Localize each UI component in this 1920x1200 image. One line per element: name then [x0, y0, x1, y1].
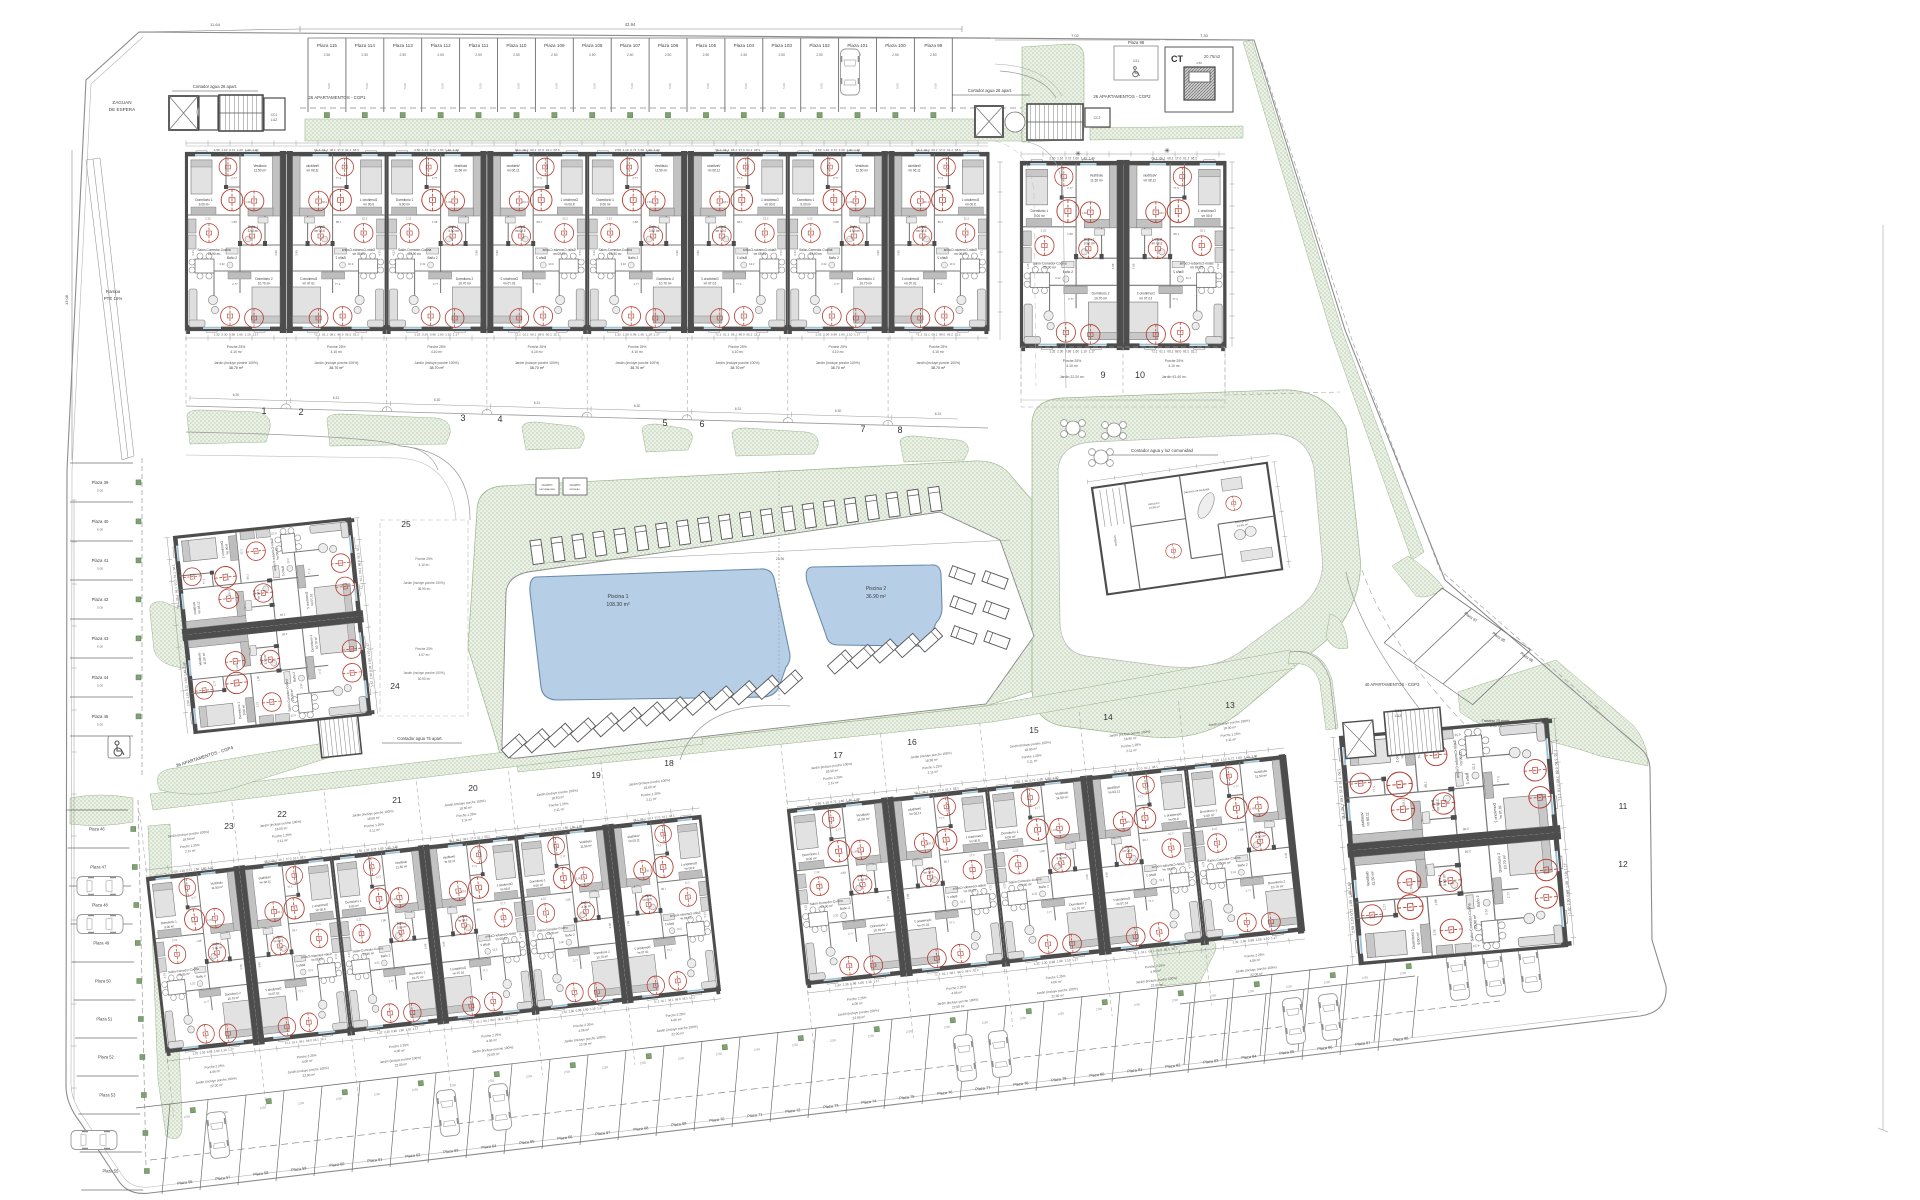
svg-text:8: 8: [897, 425, 902, 435]
svg-text:2.50: 2.50: [1020, 1016, 1027, 1021]
svg-text:Plaza 104: Plaza 104: [734, 43, 755, 48]
svg-text:DE ESPERA: DE ESPERA: [109, 107, 136, 112]
svg-text:Plaza 39: Plaza 39: [92, 480, 109, 485]
svg-text:LUZ: LUZ: [1395, 714, 1403, 718]
svg-text:2.50: 2.50: [324, 53, 331, 57]
svg-text:Plaza 42: Plaza 42: [92, 597, 109, 602]
svg-text:Porche 25%: Porche 25%: [327, 345, 345, 349]
svg-text:2: 2: [298, 407, 303, 417]
svg-text:2.50: 2.50: [513, 53, 520, 57]
svg-text:5.00: 5.00: [516, 83, 520, 89]
svg-text:5.00: 5.00: [97, 645, 103, 649]
svg-text:LUZ: LUZ: [271, 118, 277, 122]
svg-text:20,75m2: 20,75m2: [1204, 54, 1221, 59]
svg-text:Plaza 110: Plaza 110: [506, 43, 527, 48]
svg-text:16: 16: [907, 737, 917, 747]
svg-text:Porche 25%: Porche 25%: [929, 345, 947, 349]
svg-text:CC1: CC1: [271, 113, 278, 117]
svg-text:Plaza 112: Plaza 112: [431, 43, 452, 48]
svg-text:2.50: 2.50: [816, 53, 823, 57]
svg-text:5.00: 5.00: [933, 83, 937, 89]
svg-text:Plaza 48: Plaza 48: [92, 903, 109, 908]
svg-text:5.00: 5.00: [97, 723, 103, 727]
svg-text:4.10 m²: 4.10 m²: [1066, 364, 1078, 368]
svg-text:38.70 m²: 38.70 m²: [831, 366, 846, 370]
svg-text:4.10 m²: 4.10 m²: [932, 350, 944, 354]
svg-text:5.00: 5.00: [744, 83, 748, 89]
svg-text:Jardín (incluye porche 100%): Jardín (incluye porche 100%): [515, 361, 559, 365]
svg-text:1: 1: [261, 406, 266, 416]
svg-text:2.50: 2.50: [665, 53, 672, 57]
svg-text:5.00: 5.00: [403, 83, 407, 89]
svg-text:2.50: 2.50: [792, 1043, 799, 1048]
svg-text:5.00: 5.00: [327, 83, 331, 89]
svg-text:21: 21: [392, 795, 402, 805]
svg-text:Plaza 53: Plaza 53: [99, 1093, 116, 1098]
svg-text:2.50: 2.50: [450, 1083, 457, 1088]
svg-text:Jardín 22.20 m²: Jardín 22.20 m²: [1060, 375, 1085, 379]
svg-text:Plaza 103: Plaza 103: [772, 43, 793, 48]
svg-text:6.31: 6.31: [935, 412, 942, 416]
svg-text:2.50: 2.50: [716, 1052, 723, 1057]
svg-text:Plaza 106: Plaza 106: [658, 43, 679, 48]
svg-text:6.30: 6.30: [634, 404, 641, 408]
svg-text:30.90 m²: 30.90 m²: [418, 677, 431, 681]
svg-text:Plaza 46: Plaza 46: [89, 827, 106, 832]
svg-text:2.50: 2.50: [1134, 1002, 1141, 1007]
svg-text:2.50: 2.50: [1400, 971, 1407, 976]
svg-text:38.70 m²: 38.70 m²: [630, 366, 645, 370]
svg-text:Cortador agua 26 apart.: Cortador agua 26 apart.: [193, 84, 237, 89]
svg-text:Jardín 92.40 m²: Jardín 92.40 m²: [1162, 375, 1187, 379]
svg-text:36.90 m²: 36.90 m²: [866, 594, 886, 600]
svg-text:2.50: 2.50: [589, 53, 596, 57]
svg-text:38.70 m²: 38.70 m²: [530, 366, 545, 370]
svg-text:4.10 m²: 4.10 m²: [431, 350, 443, 354]
svg-text:Porche 25%: Porche 25%: [628, 345, 646, 349]
svg-text:2.50: 2.50: [362, 53, 369, 57]
svg-text:5.00: 5.00: [782, 83, 786, 89]
svg-text:2.50: 2.50: [374, 1092, 381, 1097]
svg-text:Plaza 44: Plaza 44: [92, 675, 109, 680]
svg-text:15: 15: [1029, 725, 1039, 735]
svg-text:5.00: 5.00: [668, 83, 672, 89]
svg-text:13.08: 13.08: [64, 294, 69, 305]
svg-text:Plaza 50: Plaza 50: [95, 979, 112, 984]
svg-text:Jardín (incluye porche 100%): Jardín (incluye porche 100%): [403, 671, 444, 675]
svg-text:Plaza 115: Plaza 115: [317, 43, 338, 48]
svg-text:Plaza 105: Plaza 105: [696, 43, 717, 48]
svg-text:23: 23: [224, 821, 234, 831]
svg-text:Plaza 52: Plaza 52: [98, 1055, 115, 1060]
svg-text:5.00: 5.00: [706, 83, 710, 89]
svg-text:11.64: 11.64: [210, 22, 220, 27]
svg-text:Porche 25%: Porche 25%: [227, 345, 245, 349]
svg-text:Plaza 100: Plaza 100: [885, 43, 906, 48]
svg-text:23.96: 23.96: [776, 557, 785, 561]
svg-text:40 APARTAMENTOS - CGP3: 40 APARTAMENTOS - CGP3: [1365, 682, 1420, 687]
svg-text:38.70 m²: 38.70 m²: [229, 366, 244, 370]
svg-text:PTE 16%: PTE 16%: [104, 296, 123, 301]
svg-text:2.50: 2.50: [1172, 998, 1179, 1003]
svg-text:6.30: 6.30: [434, 398, 441, 402]
svg-text:2.50: 2.50: [488, 1079, 495, 1084]
svg-text:Plaza 114: Plaza 114: [355, 43, 376, 48]
svg-text:2.50: 2.50: [778, 53, 785, 57]
svg-text:6.31: 6.31: [333, 396, 340, 400]
svg-text:6.30: 6.30: [835, 409, 842, 413]
svg-text:Plaza 113: Plaza 113: [393, 43, 414, 48]
svg-text:2.50: 2.50: [678, 1056, 685, 1061]
svg-text:2.50: 2.50: [551, 53, 558, 57]
svg-text:25: 25: [401, 519, 411, 529]
svg-text:Porche 25%: Porche 25%: [1165, 359, 1183, 363]
svg-text:5.00: 5.00: [97, 489, 103, 493]
svg-text:Plaza 108: Plaza 108: [582, 43, 603, 48]
svg-text:2.50: 2.50: [564, 1070, 571, 1075]
svg-text:42.94: 42.94: [625, 22, 636, 27]
svg-text:3.00 m²: 3.00 m²: [1490, 724, 1503, 728]
svg-text:Plaza 55: Plaza 55: [102, 1169, 119, 1174]
svg-text:Jardín (incluye porche 100%): Jardín (incluye porche 100%): [415, 361, 459, 365]
svg-text:6.31: 6.31: [534, 401, 541, 405]
svg-text:Plaza 98: Plaza 98: [1128, 40, 1145, 45]
svg-text:2.50: 2.50: [1324, 980, 1331, 985]
svg-text:36.90 m²: 36.90 m²: [418, 587, 431, 591]
svg-text:5.00: 5.00: [365, 83, 369, 89]
svg-text:20: 20: [468, 783, 478, 793]
svg-text:Plaza 51: Plaza 51: [96, 1017, 113, 1022]
svg-text:2.50: 2.50: [399, 53, 406, 57]
svg-text:9: 9: [1100, 370, 1105, 380]
svg-text:5.00: 5.00: [97, 606, 103, 610]
svg-text:2.50: 2.50: [1286, 984, 1293, 989]
svg-text:22: 22: [277, 809, 287, 819]
svg-text:Plaza 45: Plaza 45: [92, 714, 109, 719]
svg-text:38.70 m²: 38.70 m²: [730, 366, 745, 370]
svg-text:4.10 m²: 4.10 m²: [631, 350, 643, 354]
svg-text:26 APARTAMENTOS - CGP1: 26 APARTAMENTOS - CGP1: [308, 95, 366, 100]
svg-text:Plaza 99: Plaza 99: [924, 43, 942, 48]
svg-text:Porche 25%: Porche 25%: [728, 345, 746, 349]
svg-text:5.00: 5.00: [895, 83, 899, 89]
svg-text:2.50: 2.50: [1362, 975, 1369, 980]
svg-text:38.70 m²: 38.70 m²: [430, 366, 445, 370]
svg-text:2.50: 2.50: [336, 1096, 343, 1101]
svg-text:2.50: 2.50: [982, 1020, 989, 1025]
svg-text:4: 4: [497, 414, 502, 424]
svg-text:2.50: 2.50: [437, 53, 444, 57]
svg-text:108.30 m²: 108.30 m²: [606, 602, 630, 608]
svg-text:7.02: 7.02: [1071, 33, 1080, 38]
svg-text:4.07 m²: 4.07 m²: [419, 653, 430, 657]
svg-text:5.00: 5.00: [554, 83, 558, 89]
svg-text:2.50: 2.50: [906, 1029, 913, 1034]
svg-text:18: 18: [664, 758, 674, 768]
svg-text:5.00: 5.00: [441, 83, 445, 89]
svg-text:2.50: 2.50: [944, 1025, 951, 1030]
svg-text:2.50: 2.50: [1058, 1011, 1065, 1016]
svg-text:2.50: 2.50: [526, 1074, 533, 1079]
svg-text:5.00: 5.00: [97, 684, 103, 688]
svg-text:2.50: 2.50: [260, 1105, 267, 1110]
svg-text:5.00: 5.00: [592, 83, 596, 89]
svg-text:2.50: 2.50: [412, 1087, 419, 1092]
svg-text:4.10 m²: 4.10 m²: [1168, 364, 1180, 368]
svg-text:5: 5: [662, 418, 667, 428]
svg-text:13: 13: [1225, 700, 1235, 710]
svg-text:INSTALAC.: INSTALAC.: [569, 488, 581, 491]
svg-text:2.50: 2.50: [830, 1038, 837, 1043]
svg-text:Porche 25%: Porche 25%: [528, 345, 546, 349]
svg-text:2.50: 2.50: [1248, 989, 1255, 994]
svg-text:38.70 m²: 38.70 m²: [329, 366, 344, 370]
svg-text:2.50: 2.50: [754, 1047, 761, 1052]
svg-text:Porche 25%: Porche 25%: [415, 647, 433, 651]
svg-text:Plaza 47: Plaza 47: [90, 865, 107, 870]
svg-text:Jardín (incluye porche 100%): Jardín (incluye porche 100%): [214, 361, 258, 365]
svg-text:3.91: 3.91: [1133, 59, 1139, 63]
svg-text:Jardín (incluye porche 100%): Jardín (incluye porche 100%): [816, 361, 860, 365]
svg-text:6.31: 6.31: [735, 407, 742, 411]
svg-text:DEPURADORA: DEPURADORA: [539, 488, 555, 491]
svg-text:3: 3: [460, 413, 465, 423]
svg-text:7: 7: [860, 424, 865, 434]
svg-text:6.30: 6.30: [233, 393, 240, 397]
svg-text:7.30: 7.30: [1200, 33, 1209, 38]
svg-text:38.70 m²: 38.70 m²: [931, 366, 946, 370]
svg-text:4.10 m²: 4.10 m²: [419, 563, 430, 567]
svg-text:6: 6: [699, 419, 704, 429]
svg-text:26 APARTAMENTOS - CGP2: 26 APARTAMENTOS - CGP2: [1093, 94, 1151, 99]
svg-text:2.50: 2.50: [475, 53, 482, 57]
svg-text:Plaza 102: Plaza 102: [809, 43, 830, 48]
svg-text:Piscina 1: Piscina 1: [607, 594, 628, 600]
svg-text:Contador agua 75 apart.: Contador agua 75 apart.: [397, 736, 442, 741]
svg-text:4.10 m²: 4.10 m²: [531, 350, 543, 354]
svg-text:Porche 25%: Porche 25%: [829, 345, 847, 349]
svg-text:CUARTO: CUARTO: [542, 483, 553, 487]
svg-text:Trastero 75 apart.: Trastero 75 apart.: [1482, 719, 1510, 723]
svg-text:17: 17: [833, 750, 843, 760]
svg-text:2.50: 2.50: [1096, 1007, 1103, 1012]
svg-text:ZAGUAN: ZAGUAN: [112, 100, 131, 105]
svg-text:4.10 m²: 4.10 m²: [230, 350, 242, 354]
svg-text:Porche 25%: Porche 25%: [415, 557, 433, 561]
svg-text:2.50: 2.50: [868, 1034, 875, 1039]
svg-text:Plaza 107: Plaza 107: [620, 43, 641, 48]
svg-text:2.50: 2.50: [298, 1101, 305, 1106]
svg-text:Plaza 109: Plaza 109: [544, 43, 565, 48]
svg-text:CUARTO: CUARTO: [570, 483, 581, 487]
svg-text:Plaza 41: Plaza 41: [92, 558, 109, 563]
svg-text:Jardín (incluye porche 100%): Jardín (incluye porche 100%): [916, 361, 960, 365]
svg-text:2.50: 2.50: [627, 53, 634, 57]
svg-text:5.00: 5.00: [97, 567, 103, 571]
svg-text:4.80: 4.80: [1196, 61, 1202, 65]
svg-text:2.50: 2.50: [892, 53, 899, 57]
svg-text:Piscina 2: Piscina 2: [866, 586, 887, 592]
svg-text:2.50: 2.50: [640, 1061, 647, 1066]
svg-text:Jardín (incluye porche 100%): Jardín (incluye porche 100%): [715, 361, 759, 365]
svg-text:Jardín (incluye porche 100%): Jardín (incluye porche 100%): [314, 361, 358, 365]
svg-text:Plaza 49: Plaza 49: [93, 941, 110, 946]
svg-text:2.50: 2.50: [184, 1114, 191, 1119]
svg-text:Plaza 111: Plaza 111: [469, 43, 489, 48]
svg-text:5.00: 5.00: [820, 83, 824, 89]
svg-text:19: 19: [591, 770, 601, 780]
svg-text:2.50: 2.50: [741, 53, 748, 57]
svg-text:Cortador agua 26 apart.: Cortador agua 26 apart.: [968, 88, 1012, 93]
svg-text:2.50: 2.50: [602, 1065, 609, 1070]
svg-text:CC2: CC2: [1094, 116, 1101, 120]
svg-text:4.10 m²: 4.10 m²: [832, 350, 844, 354]
svg-text:Porche 25%: Porche 25%: [427, 345, 445, 349]
svg-text:2.50: 2.50: [930, 53, 937, 57]
svg-text:5.00: 5.00: [97, 528, 103, 532]
svg-text:Plaza 101: Plaza 101: [847, 43, 868, 48]
svg-text:11: 11: [1619, 801, 1628, 811]
svg-text:Jardín (incluye porche 100%): Jardín (incluye porche 100%): [615, 361, 659, 365]
svg-text:12: 12: [1618, 859, 1628, 869]
svg-text:Plaza 43: Plaza 43: [92, 636, 109, 641]
svg-text:24: 24: [390, 681, 400, 691]
svg-text:5.00: 5.00: [630, 83, 634, 89]
svg-text:2.50: 2.50: [703, 53, 710, 57]
svg-text:CT: CT: [1171, 54, 1183, 64]
svg-text:Jardín (incluye porche 100%): Jardín (incluye porche 100%): [403, 581, 444, 585]
svg-text:10: 10: [1135, 370, 1145, 380]
svg-text:4.10 m²: 4.10 m²: [331, 350, 343, 354]
svg-text:Contador agua y luz comunidad: Contador agua y luz comunidad: [1131, 448, 1194, 453]
svg-text:5.00: 5.00: [479, 83, 483, 89]
svg-text:14: 14: [1103, 712, 1113, 722]
svg-text:CC3: CC3: [1394, 709, 1401, 713]
svg-text:Plaza 40: Plaza 40: [92, 519, 109, 524]
svg-text:4.10 m²: 4.10 m²: [732, 350, 744, 354]
